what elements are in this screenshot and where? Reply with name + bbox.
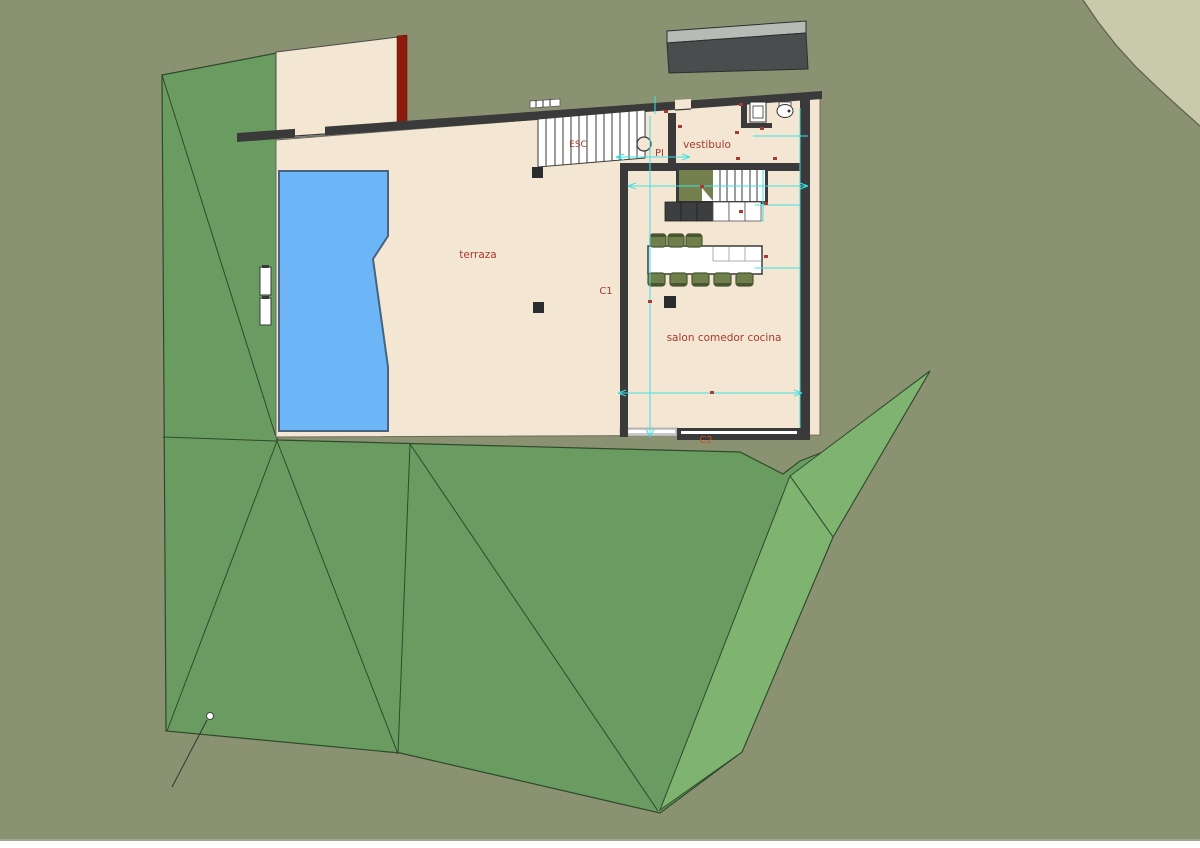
room-label-terraza: terraza	[459, 249, 496, 261]
upper-stair-dashes	[530, 99, 560, 108]
pool-lounger	[260, 267, 271, 295]
dimension-marker	[739, 103, 743, 106]
right-wall	[800, 94, 810, 437]
kitchen-counter-cell	[665, 202, 681, 221]
room-label-pi: PI	[655, 148, 664, 159]
kitchen-counter-cell	[713, 202, 729, 221]
room-label-vestibulo: vestibulo	[683, 139, 731, 151]
dimension-marker	[710, 391, 714, 394]
floor-plan-canvas: ESCPIvestibuloterrazaC1salon comedor coc…	[0, 0, 1200, 848]
lounger-nub	[262, 265, 269, 268]
bath-wall-horizontal	[741, 123, 772, 128]
bottom-border-strip	[0, 841, 1200, 848]
dimension-marker	[664, 110, 668, 113]
dimension-marker	[648, 300, 652, 303]
column	[664, 296, 676, 308]
dimension-marker	[700, 185, 704, 188]
kitchen-counter-cell	[681, 202, 697, 221]
room-label-salon: salon comedor cocina	[667, 332, 782, 344]
room-label-c1: C1	[599, 286, 612, 297]
salon-left-wall	[620, 163, 628, 437]
column	[533, 302, 544, 313]
lounger-nub	[262, 296, 269, 299]
chair-back	[649, 283, 664, 286]
bottom-wall-glazed-stripe	[622, 430, 675, 433]
chair-back	[693, 283, 708, 286]
chair-back	[737, 283, 752, 286]
pool	[279, 171, 388, 431]
dimension-marker	[735, 131, 739, 134]
chair-back	[687, 234, 701, 237]
site-point-dot	[207, 713, 214, 720]
bath-wall-vertical	[741, 97, 747, 126]
dimension-marker	[760, 127, 764, 130]
toilet-flush	[788, 110, 791, 113]
dimension-marker	[678, 125, 682, 128]
toilet	[777, 105, 793, 118]
chair-back	[669, 234, 683, 237]
dimension-marker	[773, 157, 777, 160]
round-column	[637, 137, 651, 151]
chair-back	[715, 283, 730, 286]
dimension-marker	[764, 202, 768, 205]
kitchen-counter-cell	[697, 202, 713, 221]
red-wall	[397, 35, 407, 129]
sink	[750, 102, 766, 122]
bottom-wall-stripe	[681, 431, 797, 434]
room-label-c2: C2	[699, 435, 712, 446]
dimension-marker	[764, 255, 768, 258]
dimension-marker	[739, 210, 743, 213]
dimension-marker	[736, 157, 740, 160]
chair-back	[651, 234, 665, 237]
pool-lounger	[260, 298, 271, 325]
plan-viewport: ESCPIvestibuloterrazaC1salon comedor coc…	[0, 0, 1200, 848]
chair-back	[671, 283, 686, 286]
room-label-esc: ESC	[569, 140, 587, 150]
column	[532, 167, 543, 178]
